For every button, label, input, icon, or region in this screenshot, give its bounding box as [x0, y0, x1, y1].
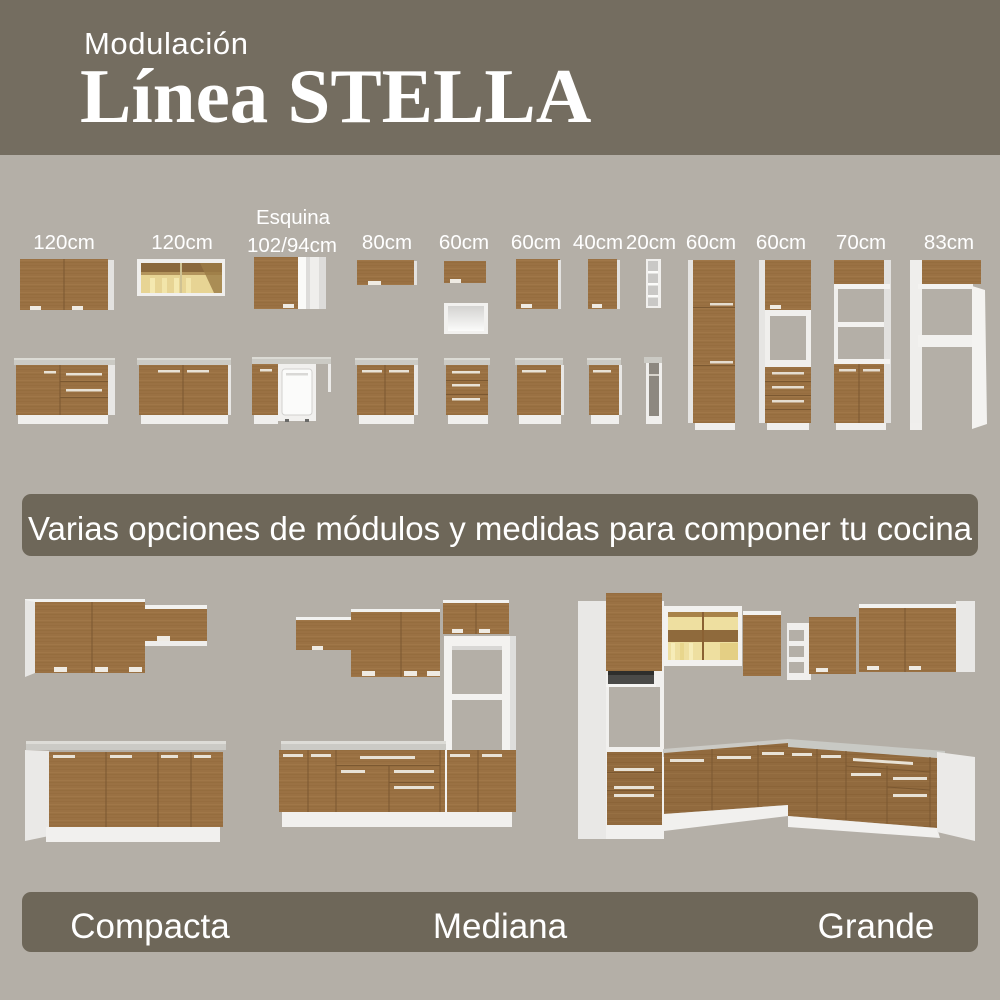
svg-text:60cm: 60cm [686, 231, 736, 254]
svg-text:60cm: 60cm [511, 231, 561, 254]
svg-text:83cm: 83cm [924, 231, 974, 254]
svg-text:120cm: 120cm [33, 231, 95, 254]
svg-text:Grande: Grande [818, 907, 935, 946]
svg-text:Esquina: Esquina [256, 206, 331, 229]
svg-text:80cm: 80cm [362, 231, 412, 254]
svg-text:40cm: 40cm [573, 231, 623, 254]
svg-text:70cm: 70cm [836, 231, 886, 254]
svg-text:Varias opciones de módulos y m: Varias opciones de módulos y medidas par… [28, 510, 973, 547]
svg-text:Compacta: Compacta [70, 907, 230, 946]
svg-text:60cm: 60cm [439, 231, 489, 254]
svg-text:60cm: 60cm [756, 231, 806, 254]
svg-text:Línea STELLA: Línea STELLA [80, 53, 592, 139]
svg-text:120cm: 120cm [151, 231, 213, 254]
svg-text:20cm: 20cm [626, 231, 676, 254]
svg-text:Mediana: Mediana [433, 907, 568, 946]
svg-text:102/94cm: 102/94cm [247, 234, 337, 257]
